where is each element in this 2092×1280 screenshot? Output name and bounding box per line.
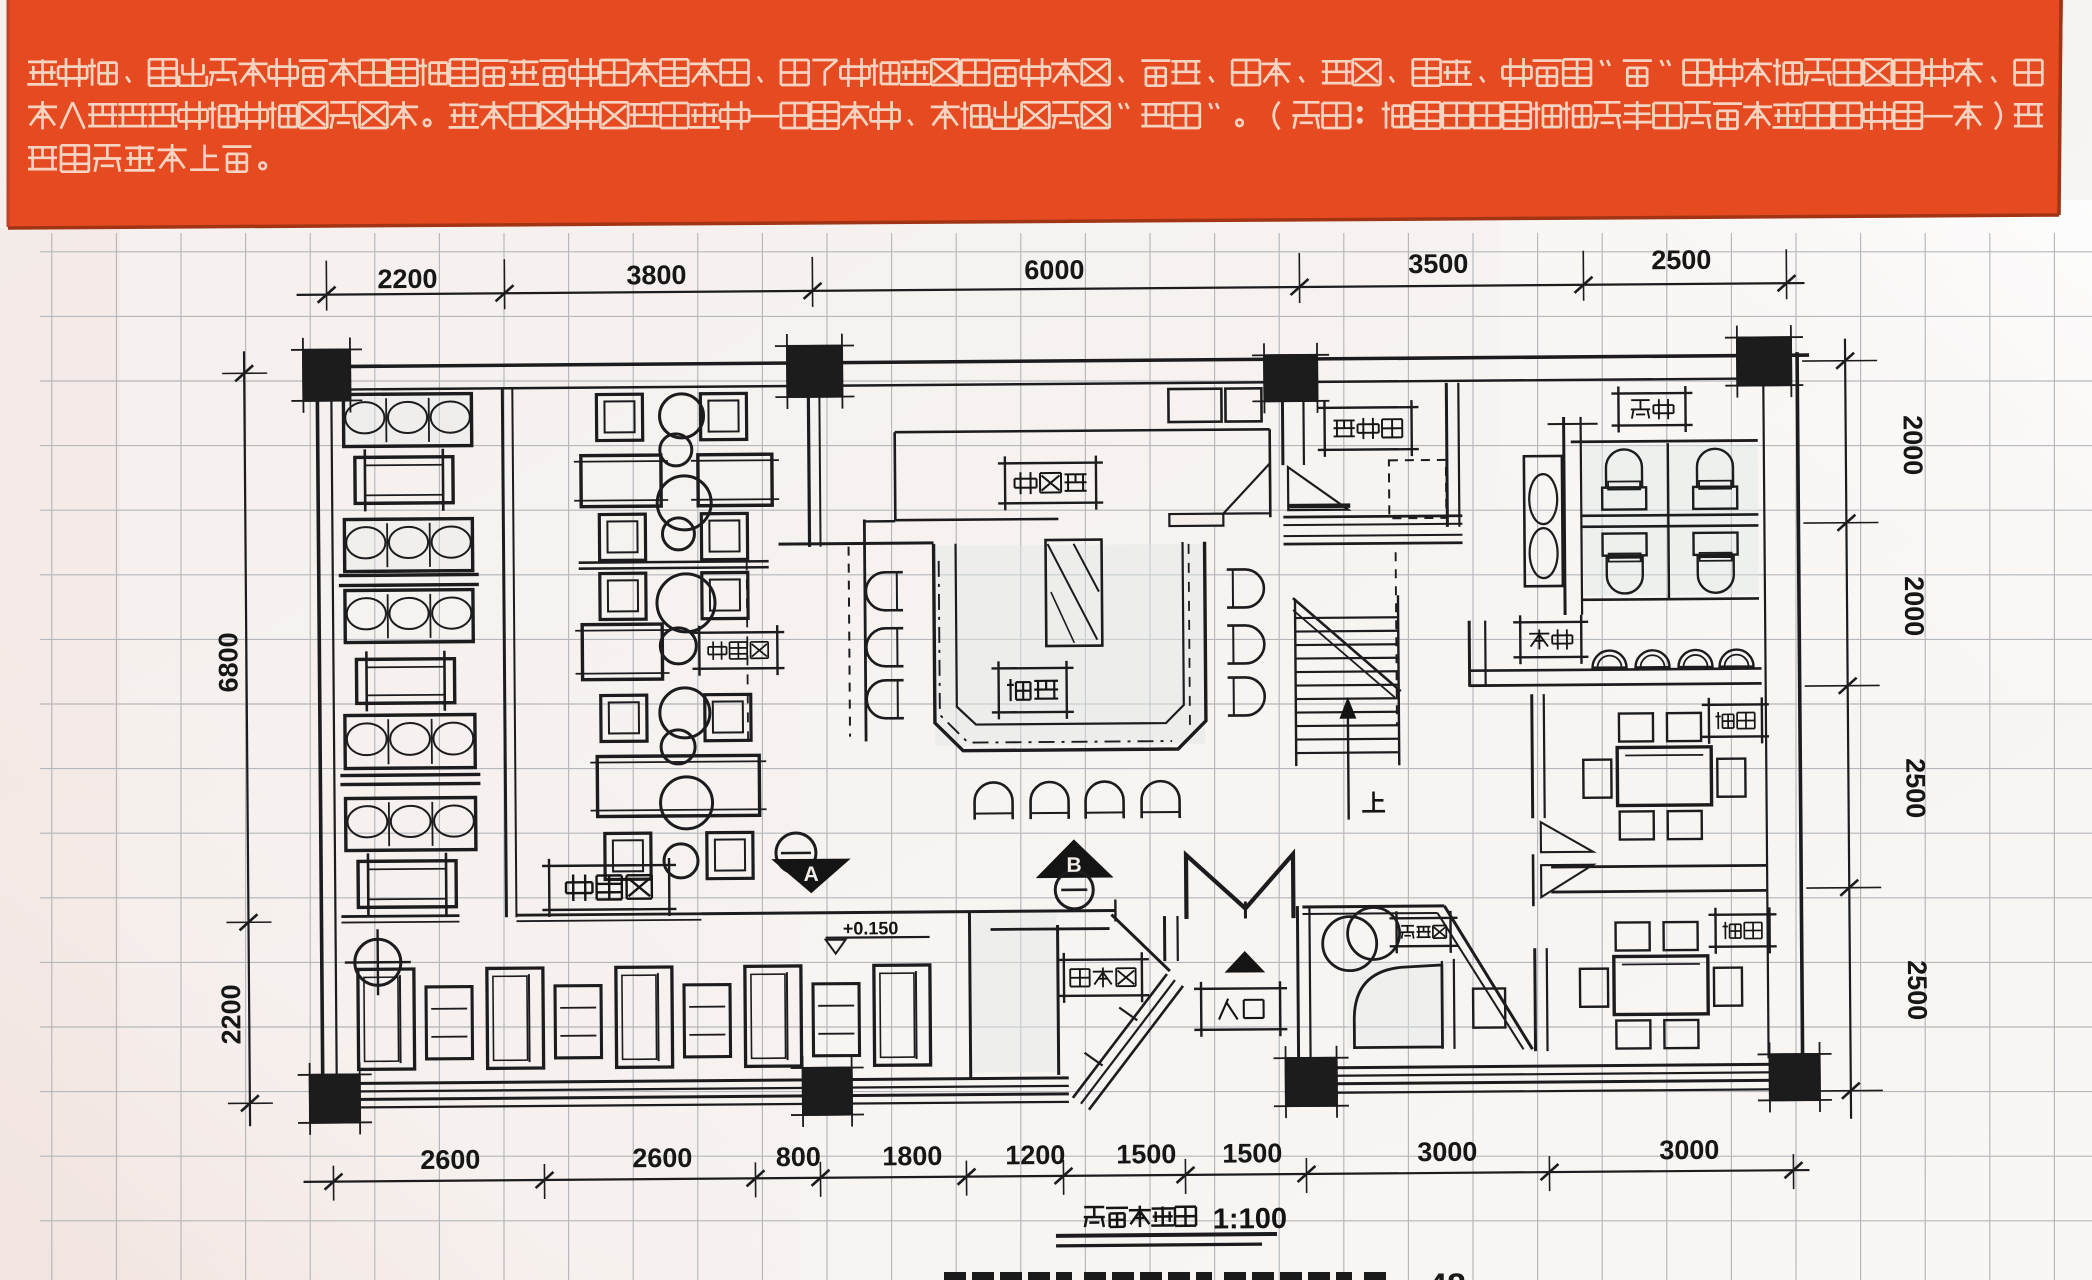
svg-text:3500: 3500 bbox=[1408, 249, 1468, 279]
svg-text:2000: 2000 bbox=[1899, 576, 1929, 636]
svg-text:1200: 1200 bbox=[1005, 1140, 1065, 1170]
svg-text:1500: 1500 bbox=[1222, 1138, 1282, 1168]
svg-text:1:100: 1:100 bbox=[1213, 1203, 1287, 1236]
svg-text:3000: 3000 bbox=[1417, 1137, 1477, 1167]
svg-text:A: A bbox=[803, 863, 818, 886]
svg-text:2500: 2500 bbox=[1651, 245, 1711, 275]
svg-text:800: 800 bbox=[776, 1142, 821, 1172]
svg-text:2200: 2200 bbox=[377, 264, 437, 294]
svg-text:1500: 1500 bbox=[1116, 1139, 1176, 1169]
svg-text:2600: 2600 bbox=[420, 1144, 480, 1174]
svg-text:6000: 6000 bbox=[1024, 255, 1084, 285]
svg-text:2200: 2200 bbox=[216, 984, 246, 1044]
svg-text:6800: 6800 bbox=[213, 632, 243, 692]
svg-text:2500: 2500 bbox=[1900, 758, 1930, 818]
svg-text:+0.150: +0.150 bbox=[843, 918, 899, 938]
svg-text:B: B bbox=[1066, 854, 1081, 877]
svg-text:2000: 2000 bbox=[1898, 415, 1928, 475]
svg-text:3000: 3000 bbox=[1659, 1135, 1719, 1165]
svg-text:2600: 2600 bbox=[632, 1143, 692, 1173]
svg-text:2500: 2500 bbox=[1902, 960, 1932, 1020]
svg-text:1800: 1800 bbox=[882, 1141, 942, 1171]
svg-text:48: 48 bbox=[1428, 1267, 1466, 1280]
svg-text:3800: 3800 bbox=[626, 260, 686, 290]
